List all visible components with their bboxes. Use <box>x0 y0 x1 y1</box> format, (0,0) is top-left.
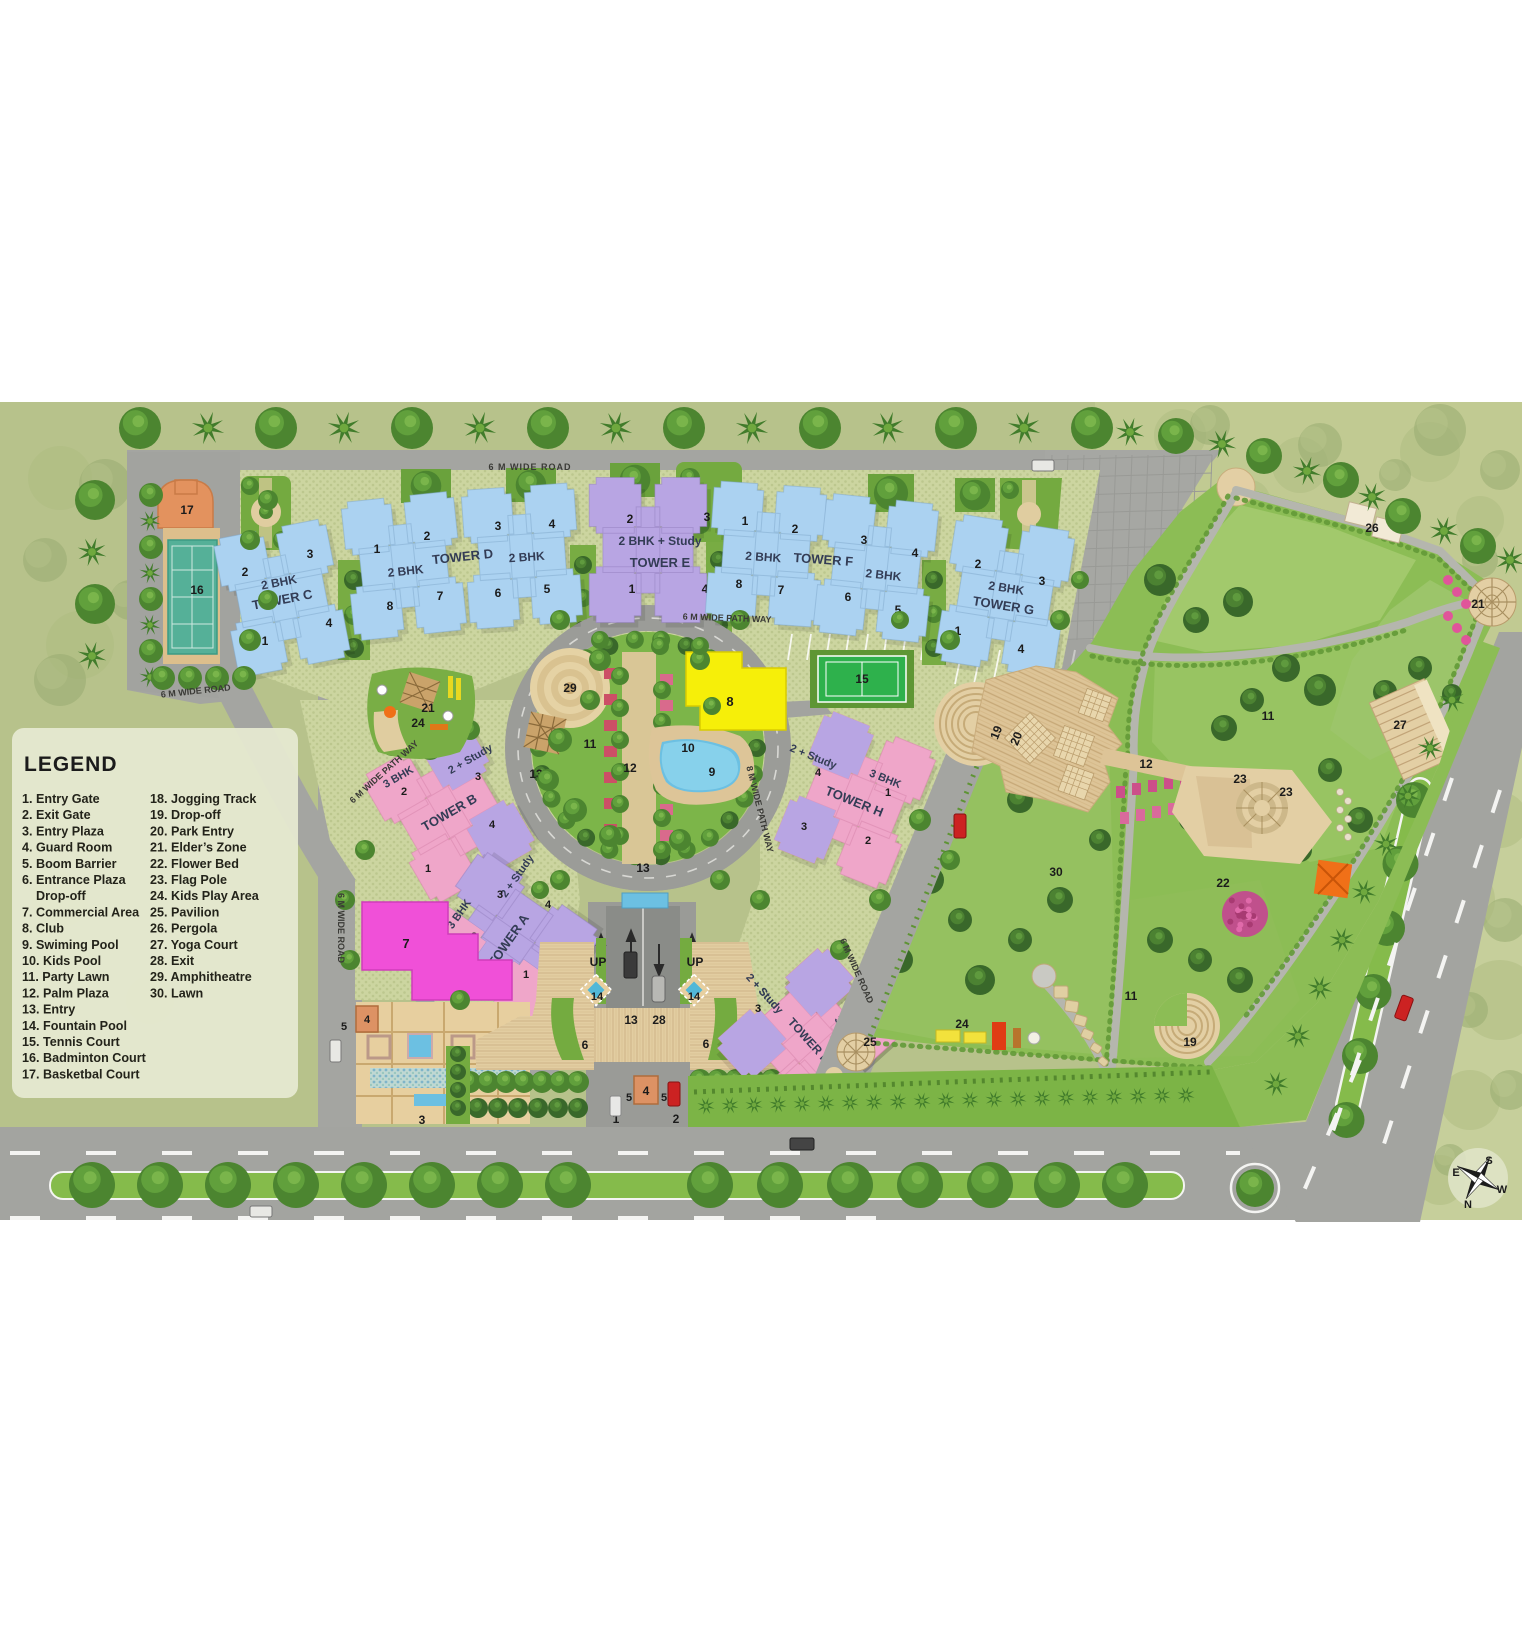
svg-text:7: 7 <box>778 583 785 597</box>
svg-text:28: 28 <box>652 1013 666 1027</box>
svg-text:4: 4 <box>326 616 333 630</box>
svg-text:5: 5 <box>661 1092 667 1104</box>
svg-text:3: 3 <box>704 510 711 524</box>
svg-text:3: 3 <box>475 771 481 783</box>
svg-text:13. Entry: 13. Entry <box>22 1003 75 1017</box>
svg-text:3: 3 <box>755 1003 761 1015</box>
svg-text:3: 3 <box>495 519 502 533</box>
svg-text:12. Palm Plaza: 12. Palm Plaza <box>22 986 110 1000</box>
svg-text:3: 3 <box>419 1113 426 1127</box>
svg-text:23. Flag Pole: 23. Flag Pole <box>150 873 227 887</box>
svg-text:3: 3 <box>1039 574 1046 588</box>
svg-text:15: 15 <box>855 672 869 686</box>
svg-text:6: 6 <box>582 1038 589 1052</box>
svg-text:16: 16 <box>190 583 204 597</box>
svg-text:8: 8 <box>736 577 743 591</box>
svg-text:12: 12 <box>623 761 637 775</box>
svg-text:5: 5 <box>544 582 551 596</box>
svg-text:2: 2 <box>673 1112 680 1126</box>
svg-text:1: 1 <box>629 582 636 596</box>
svg-text:30. Lawn: 30. Lawn <box>150 986 203 1000</box>
svg-text:W: W <box>1497 1184 1508 1196</box>
svg-text:4: 4 <box>643 1084 650 1098</box>
svg-text:10. Kids Pool: 10. Kids Pool <box>22 954 101 968</box>
svg-text:4: 4 <box>1018 642 1025 656</box>
svg-text:1: 1 <box>374 542 381 556</box>
svg-text:21: 21 <box>421 701 435 715</box>
svg-text:1: 1 <box>523 969 529 981</box>
svg-text:S: S <box>1485 1155 1492 1167</box>
svg-text:6. Entrance Plaza: 6. Entrance Plaza <box>22 873 127 887</box>
svg-text:23: 23 <box>1233 772 1247 786</box>
svg-text:27. Yoga Court: 27. Yoga Court <box>150 938 239 952</box>
svg-text:11: 11 <box>1125 989 1138 1003</box>
svg-text:5. Boom Barrier: 5. Boom Barrier <box>22 857 117 871</box>
svg-text:28. Exit: 28. Exit <box>150 954 195 968</box>
svg-text:24: 24 <box>955 1017 969 1031</box>
svg-text:24. Kids Play Area: 24. Kids Play Area <box>150 889 260 903</box>
svg-text:4: 4 <box>364 1014 371 1026</box>
svg-text:4: 4 <box>549 517 556 531</box>
svg-text:12: 12 <box>1139 757 1153 771</box>
svg-text:14: 14 <box>688 991 701 1003</box>
svg-text:UP: UP <box>687 955 704 969</box>
svg-text:Drop-off: Drop-off <box>36 889 86 903</box>
svg-text:19. Drop-off: 19. Drop-off <box>150 808 221 822</box>
svg-text:5: 5 <box>626 1092 632 1104</box>
svg-text:2: 2 <box>865 835 871 847</box>
svg-text:1: 1 <box>262 634 269 648</box>
svg-text:1: 1 <box>425 863 431 875</box>
svg-text:17. Basketbal Court: 17. Basketbal Court <box>22 1067 140 1081</box>
svg-text:6: 6 <box>703 1037 710 1051</box>
svg-text:2 BHK: 2 BHK <box>508 549 545 566</box>
svg-text:3: 3 <box>307 547 314 561</box>
svg-text:3: 3 <box>801 821 807 833</box>
svg-text:2: 2 <box>627 512 634 526</box>
svg-text:11: 11 <box>584 737 597 751</box>
svg-text:26: 26 <box>1365 521 1379 535</box>
svg-text:2: 2 <box>242 565 249 579</box>
svg-text:5: 5 <box>341 1021 347 1033</box>
svg-text:2: 2 <box>401 786 407 798</box>
svg-text:N: N <box>1464 1199 1472 1211</box>
svg-text:6 M WIDE ROAD: 6 M WIDE ROAD <box>336 893 346 964</box>
svg-text:E: E <box>1452 1167 1459 1179</box>
svg-text:11: 11 <box>1262 709 1275 723</box>
svg-text:4: 4 <box>912 546 919 560</box>
svg-text:6: 6 <box>845 590 852 604</box>
svg-text:16. Badminton Court: 16. Badminton Court <box>22 1051 147 1065</box>
svg-text:26. Pergola: 26. Pergola <box>150 922 218 936</box>
svg-text:1: 1 <box>742 514 749 528</box>
svg-text:29: 29 <box>563 681 577 695</box>
svg-text:6: 6 <box>495 586 502 600</box>
svg-text:21: 21 <box>1471 597 1485 611</box>
svg-text:18. Jogging Track: 18. Jogging Track <box>150 792 257 806</box>
svg-text:7. Commercial Area: 7. Commercial Area <box>22 905 140 919</box>
svg-text:8: 8 <box>387 599 394 613</box>
svg-text:TOWER E: TOWER E <box>630 555 691 570</box>
svg-text:15. Tennis Court: 15. Tennis Court <box>22 1035 121 1049</box>
svg-text:29. Amphitheatre: 29. Amphitheatre <box>150 970 252 984</box>
svg-text:1: 1 <box>885 787 891 799</box>
svg-text:1. Entry Gate: 1. Entry Gate <box>22 792 100 806</box>
svg-text:3: 3 <box>497 889 503 901</box>
svg-text:24: 24 <box>411 716 425 730</box>
svg-text:25. Pavilion: 25. Pavilion <box>150 905 219 919</box>
svg-text:22. Flower Bed: 22. Flower Bed <box>150 857 239 871</box>
svg-text:4: 4 <box>815 767 822 779</box>
svg-text:22: 22 <box>1216 876 1230 890</box>
svg-text:3: 3 <box>861 533 868 547</box>
svg-text:13: 13 <box>624 1013 638 1027</box>
svg-text:13: 13 <box>636 861 650 875</box>
svg-text:2: 2 <box>975 557 982 571</box>
svg-text:19: 19 <box>1183 1035 1197 1049</box>
svg-text:2: 2 <box>792 522 799 536</box>
svg-text:2 BHK: 2 BHK <box>745 549 782 566</box>
svg-text:11. Party Lawn: 11. Party Lawn <box>22 970 110 984</box>
svg-text:4. Guard Room: 4. Guard Room <box>22 841 112 855</box>
svg-text:20. Park Entry: 20. Park Entry <box>150 824 234 838</box>
svg-text:30: 30 <box>1049 865 1063 879</box>
svg-text:9. Swiming Pool: 9. Swiming Pool <box>22 938 119 952</box>
svg-text:4: 4 <box>489 819 496 831</box>
svg-text:7: 7 <box>402 936 409 951</box>
svg-text:LEGEND: LEGEND <box>24 753 118 776</box>
svg-text:27: 27 <box>1393 718 1407 732</box>
svg-text:8. Club: 8. Club <box>22 922 64 936</box>
svg-text:23: 23 <box>1279 785 1293 799</box>
svg-text:4: 4 <box>545 899 552 911</box>
svg-text:3. Entry Plaza: 3. Entry Plaza <box>22 824 105 838</box>
svg-text:9: 9 <box>709 765 716 779</box>
svg-text:8: 8 <box>726 694 733 709</box>
svg-text:2 BHK + Study: 2 BHK + Study <box>618 534 701 548</box>
svg-text:10: 10 <box>681 741 695 755</box>
svg-text:25: 25 <box>863 1035 877 1049</box>
svg-text:14: 14 <box>591 991 604 1003</box>
svg-text:2. Exit Gate: 2. Exit Gate <box>22 808 91 822</box>
svg-text:2: 2 <box>424 529 431 543</box>
svg-text:14. Fountain Pool: 14. Fountain Pool <box>22 1019 127 1033</box>
svg-text:7: 7 <box>437 589 444 603</box>
svg-text:6 M WIDE ROAD: 6 M WIDE ROAD <box>488 462 571 472</box>
svg-text:UP: UP <box>590 955 607 969</box>
svg-text:17: 17 <box>180 503 194 517</box>
svg-text:21. Elder’s Zone: 21. Elder’s Zone <box>150 841 247 855</box>
